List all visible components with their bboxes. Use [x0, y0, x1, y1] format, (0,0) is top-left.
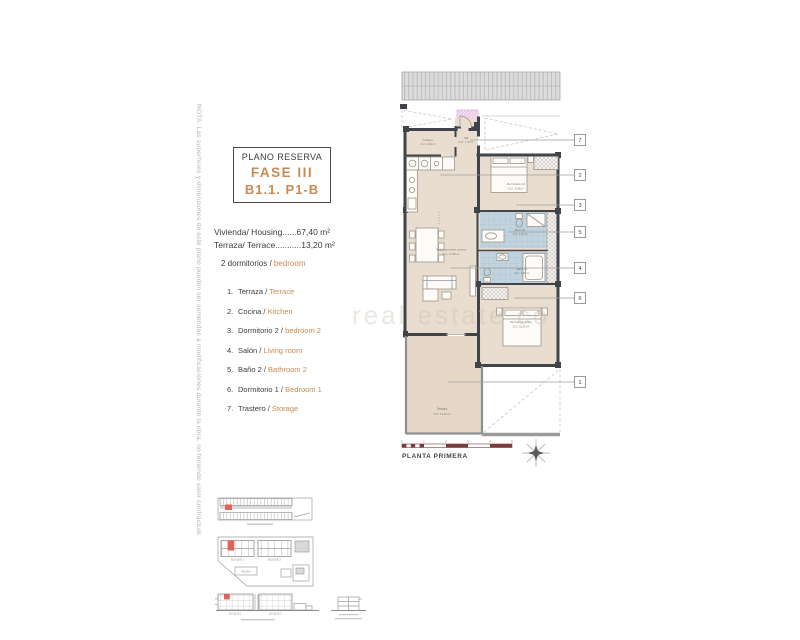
scale-tick: 3 [467, 440, 469, 444]
highlight-unit [224, 594, 230, 599]
scale-bar: 0 1 2 3 4 5 PLANTA PRIMERA [401, 440, 513, 461]
elevation-drawing: BLOQUE 1 BLOQUE 2 [215, 594, 319, 620]
legend-item: 2.Cocina / Kitchen [227, 302, 322, 322]
highlight-unit [228, 541, 235, 551]
legend-en: Terrace [269, 287, 294, 296]
roof-band [400, 72, 560, 109]
scale-tick: 0 [401, 440, 403, 444]
legend-es: Terraza / [238, 287, 269, 296]
floor-plan: Trastero S.U.: 1.80 m² hall S.U.: 1.70 m… [390, 60, 610, 470]
terraza-label: Terraza [437, 407, 448, 411]
legend-es: Salón / [238, 346, 263, 355]
dorm2-label: Dormitorio 02 [507, 182, 525, 186]
compass-rose-icon [522, 439, 550, 467]
trastero-label: Trastero [423, 138, 434, 142]
bloque1-elevation-label: BLOQUE 1 [230, 613, 243, 616]
marker-6: 6 [578, 296, 581, 302]
legend-en: Bedroom 1 [285, 385, 322, 394]
salon-area: S.U.: 27.80 m² [443, 252, 460, 256]
legend-number: 7. [227, 399, 238, 419]
section-drawing [331, 597, 366, 619]
bloque2-elevation-label: BLOQUE 2 [270, 613, 283, 616]
marker-4: 4 [578, 266, 581, 272]
scale-tick: 4 [489, 440, 491, 444]
legend-en: bedroom 2 [285, 326, 321, 335]
bedroom-count-en: bedroom [274, 259, 306, 268]
disclaimer-note: NOTA: Las superficies y dimensiones de e… [195, 104, 202, 576]
legend-es: Cocina / [238, 307, 268, 316]
wardrobe-strip [547, 212, 558, 283]
legend-number: 3. [227, 321, 238, 341]
terrace-surface: Terraza/ Terrace...........13,20 m² [214, 239, 335, 252]
legend-es: Trastero / [238, 404, 272, 413]
marker-1: 1 [578, 380, 581, 386]
suite-label: Dormitorio Suite [510, 320, 532, 324]
scale-tick: 2 [445, 440, 447, 444]
unit-code: B1.1. P1-B [236, 182, 328, 197]
legend-item: 3.Dormitorio 2 / bedroom 2 [227, 321, 322, 341]
scale-tick: 1 [423, 440, 425, 444]
highlight-unit [225, 505, 232, 511]
bloque2-label: BLOQUE 2 [268, 558, 282, 562]
bath2-area: S.U.: 3.28 m² [513, 233, 528, 236]
legend-number: 4. [227, 341, 238, 361]
legend-en: Kitchen [268, 307, 293, 316]
scale-tick: 5 [511, 440, 513, 444]
bath1-area: S.U.: 3.60 m² [515, 272, 530, 275]
suite-area: S.U.: 11.20 m² [513, 325, 530, 329]
title-block: PLANO RESERVA FASE III B1.1. P1-B [233, 147, 331, 203]
legend-number: 2. [227, 302, 238, 322]
bath2-label: Baño 02 [515, 228, 526, 232]
legend-item: 4.Salón / Living room [227, 341, 322, 361]
dorm2-area: S.U.: 9.28 m² [508, 187, 523, 191]
hall-label: hall [464, 136, 469, 140]
bedroom-count-es: 2 dormitorios / [221, 259, 274, 268]
site-plan: BLOQUE 1 BLOQUE 2 PISCINA [218, 537, 313, 586]
legend-en: Bathroom 2 [268, 365, 307, 374]
piscina-label: PISCINA [241, 571, 251, 574]
legend-en: Storage [272, 404, 298, 413]
legend-es: Baño 2 / [238, 365, 268, 374]
bloque1-label: BLOQUE 1 [231, 558, 245, 562]
salon-label: Salón comedor cocina [436, 248, 466, 252]
legend-es: Dormitorio 1 / [238, 385, 285, 394]
plan-subtitle: PLANO RESERVA [236, 152, 328, 162]
legend-es: Dormitorio 2 / [238, 326, 285, 335]
legend-item: 1.Terraza / Terrace [227, 282, 322, 302]
legend-number: 6. [227, 380, 238, 400]
legend-number: 1. [227, 282, 238, 302]
legend-number: 5. [227, 360, 238, 380]
housing-surface: Vivienda/ Housing......67,40 m² [214, 226, 335, 239]
marker-2: 2 [578, 173, 581, 179]
bedroom-count: 2 dormitorios / bedroom [221, 259, 305, 268]
marker-7: 7 [578, 138, 581, 144]
legend-en: Living room [263, 346, 302, 355]
legend-item: 6.Dormitorio 1 / Bedroom 1 [227, 380, 322, 400]
parking-key-plan [218, 498, 312, 525]
legend-item: 7.Trastero / Storage [227, 399, 322, 419]
terrace-floor [406, 336, 482, 433]
room-legend: 1.Terraza / Terrace 2.Cocina / Kitchen 3… [227, 282, 322, 419]
phase-title: FASE III [236, 165, 328, 180]
surface-summary: Vivienda/ Housing......67,40 m² Terraza/… [214, 226, 335, 252]
plan-caption: PLANTA PRIMERA [402, 453, 468, 460]
legend-item: 5.Baño 2 / Bathroom 2 [227, 360, 322, 380]
marker-5: 5 [578, 230, 581, 236]
plan-reserva-sheet: NOTA: Las superficies y dimensiones de e… [0, 0, 800, 640]
marker-3: 3 [578, 203, 581, 209]
terraza-area: S.U.: 13.20 m² [433, 412, 450, 416]
site-key-plans: BLOQUE 1 BLOQUE 2 PISCINA BLOQUE 1 BLOQU… [215, 493, 415, 633]
bath1-label: Baño 01 [517, 267, 528, 271]
trastero-area: S.U.: 1.80 m² [421, 143, 436, 146]
hall-area: S.U.: 1.70 m² [459, 141, 474, 144]
